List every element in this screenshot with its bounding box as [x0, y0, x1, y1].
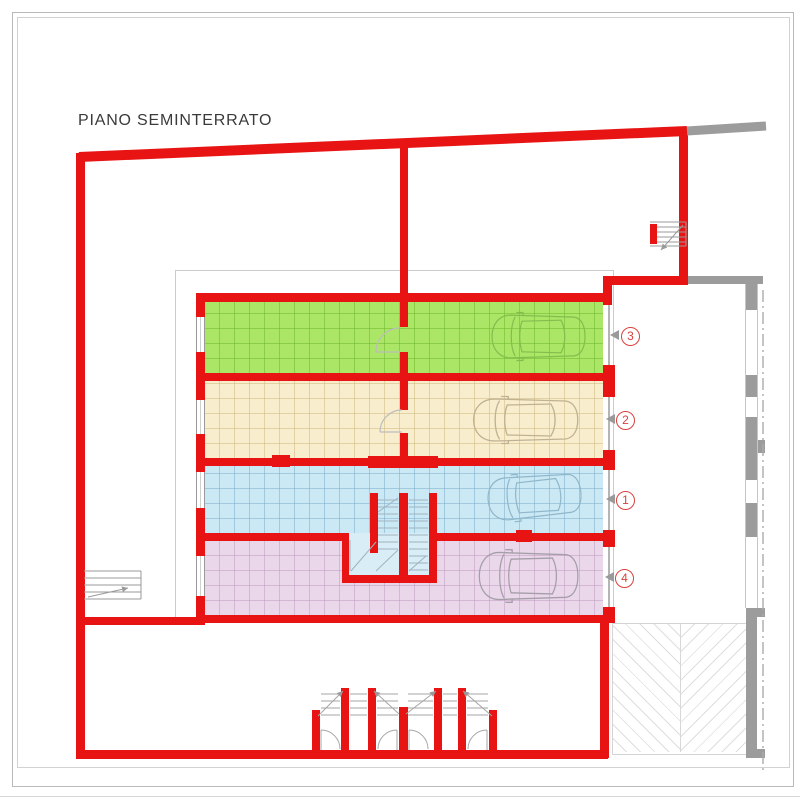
door-swing-garage2	[380, 410, 402, 432]
floor-plan-canvas: PIANO SEMINTERRATO	[0, 0, 800, 800]
unit-marker-4: 4	[615, 569, 634, 588]
direction-arrow-icon	[606, 494, 615, 504]
direction-arrow-icon	[606, 414, 615, 424]
context-wall-face-lines	[746, 284, 758, 608]
stairs-icon-west	[84, 571, 141, 599]
unit-marker-1: 1	[616, 491, 635, 510]
car-icon-garage1	[486, 469, 583, 524]
page-title: PIANO SEMINTERRATO	[78, 112, 272, 130]
stairs-icon-central	[350, 498, 428, 571]
door-swing-garage3	[376, 328, 400, 352]
unit-marker-2: 2	[616, 411, 635, 430]
car-icon-garage2	[474, 397, 578, 444]
unit-marker-3: 3	[621, 327, 640, 346]
sloped-walls	[79, 126, 766, 157]
car-icon-garage3	[492, 313, 585, 361]
direction-arrow-icon	[610, 330, 619, 340]
stairs-icon-north	[650, 222, 686, 250]
direction-arrow-icon	[605, 572, 614, 582]
car-icon-garage4	[479, 550, 578, 603]
stairs-icon-entries	[318, 691, 492, 750]
